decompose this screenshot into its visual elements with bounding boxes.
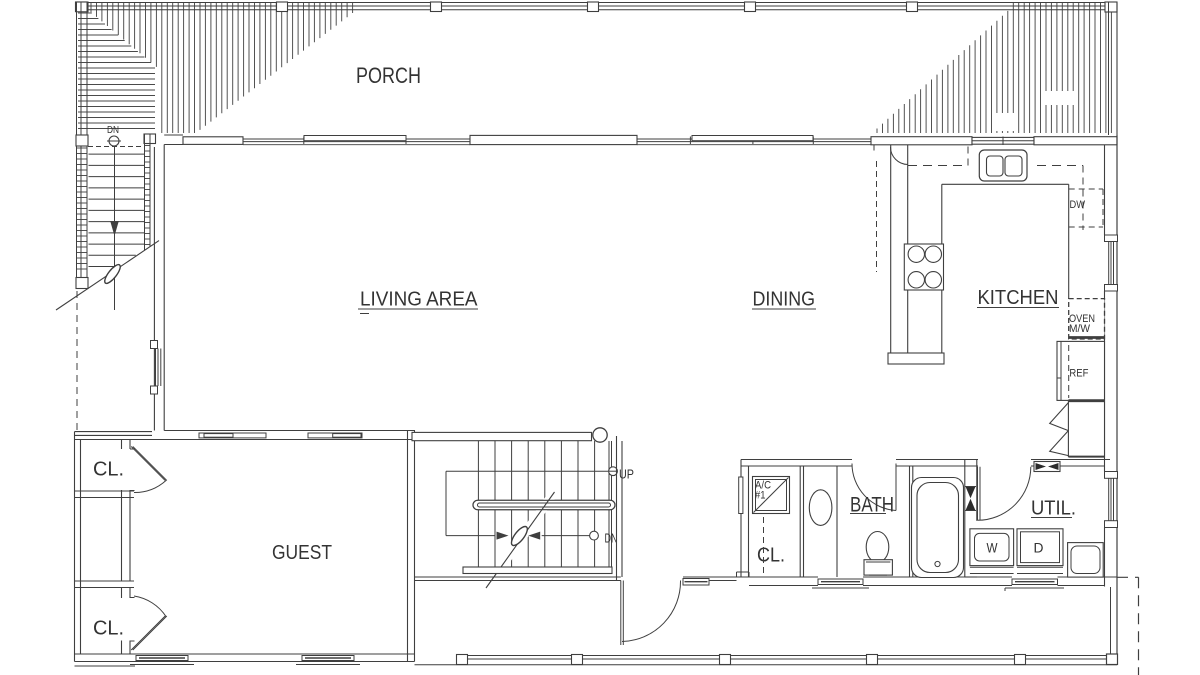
svg-text:DN: DN — [605, 531, 618, 546]
svg-text:DINING: DINING — [753, 288, 816, 311]
svg-text:CL.: CL. — [757, 545, 785, 567]
svg-text:UTIL.: UTIL. — [1031, 497, 1076, 520]
svg-text:D: D — [1034, 540, 1044, 556]
svg-text:REF: REF — [1069, 368, 1088, 380]
svg-text:M/W: M/W — [1069, 323, 1091, 335]
svg-text:UP: UP — [619, 467, 634, 482]
svg-text:GUEST: GUEST — [272, 541, 332, 564]
svg-text:#1: #1 — [755, 490, 766, 502]
svg-text:KITCHEN: KITCHEN — [978, 286, 1059, 309]
svg-text:CL.: CL. — [93, 618, 124, 640]
svg-text:CL.: CL. — [93, 459, 124, 481]
svg-text:DN: DN — [107, 124, 119, 136]
svg-text:W: W — [987, 540, 999, 556]
svg-text:PORCH: PORCH — [356, 63, 421, 88]
svg-text:DW: DW — [1070, 199, 1086, 211]
svg-text:LIVING AREA: LIVING AREA — [360, 288, 478, 311]
